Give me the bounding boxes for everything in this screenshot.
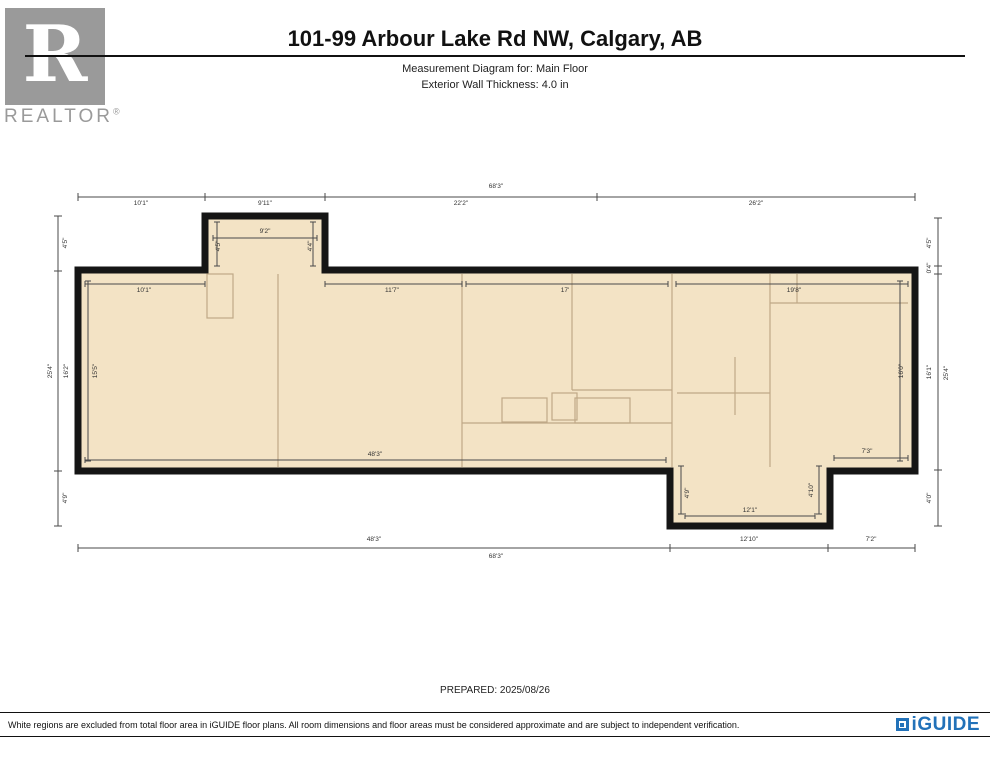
dimension-label: 19'8" — [787, 288, 801, 295]
dimension-label: 25'4" — [944, 366, 951, 380]
prepared-date: PREPARED: 2025/08/26 — [0, 685, 990, 696]
dimension-label: 10'1" — [134, 201, 148, 208]
floorplan-outline — [78, 216, 915, 526]
dimension-label: 25'4" — [48, 364, 55, 378]
dimension-label: 4'5" — [63, 238, 70, 249]
dimension-label: 9'2" — [260, 229, 271, 236]
dimension-label: 12'1" — [743, 508, 757, 515]
dimension-label: 4'0" — [927, 493, 934, 504]
dimension-label: 7'3" — [862, 449, 873, 456]
dimension-label: 16'0" — [899, 364, 906, 378]
iguide-logo: iGUIDE — [896, 714, 990, 736]
dimension-label: 68'3" — [489, 554, 503, 561]
dimension-label: 26'2" — [749, 201, 763, 208]
iguide-logo-text: iGUIDE — [912, 714, 980, 736]
dimension-label: 11'7" — [385, 288, 399, 295]
dimension-label: 16'2" — [64, 364, 71, 378]
dimension-label: 12'10" — [740, 537, 758, 544]
dimension-label: 4'10" — [809, 483, 816, 497]
dimension-label: 22'2" — [454, 201, 468, 208]
iguide-logo-icon — [896, 718, 909, 731]
dimension-label: 68'3" — [489, 184, 503, 191]
dimension-label: 10'1" — [137, 288, 151, 295]
dimension-label: 4'5" — [216, 241, 223, 252]
dimension-label: 4'5" — [927, 238, 934, 249]
title-divider-line — [25, 55, 965, 57]
measurement-diagram-page: R REALTOR® 101-99 Arbour Lake Rd NW, Cal… — [0, 0, 990, 768]
realtor-logo-label: REALTOR® — [4, 106, 123, 128]
disclaimer-text: White regions are excluded from total fl… — [0, 720, 896, 730]
floorplan-svg — [0, 0, 990, 768]
dimension-label: 4'9" — [63, 493, 70, 504]
dimension-label: 48'3" — [368, 452, 382, 459]
dimension-label: 48'3" — [367, 537, 381, 544]
footer-bar: White regions are excluded from total fl… — [0, 712, 990, 737]
dimension-label: 4'4" — [308, 241, 315, 252]
dimension-label: 0'4" — [927, 263, 934, 274]
dimension-label: 16'1" — [927, 365, 934, 379]
dimension-label: 9'11" — [258, 201, 272, 208]
page-title: 101-99 Arbour Lake Rd NW, Calgary, AB — [0, 26, 990, 52]
dimension-label: 4'9" — [685, 488, 692, 499]
dimension-label: 7'2" — [866, 537, 877, 544]
dimension-label: 17' — [561, 288, 569, 295]
dimension-label: 15'5" — [93, 364, 100, 378]
